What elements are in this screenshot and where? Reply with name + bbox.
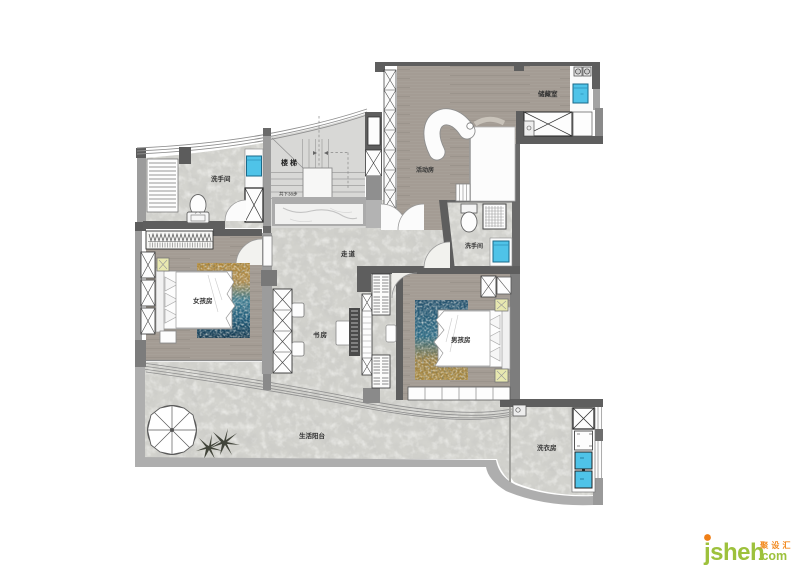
svg-text:洗手间: 洗手间 [211, 174, 231, 183]
svg-text:生活阳台: 生活阳台 [299, 431, 326, 440]
svg-text:洗衣房: 洗衣房 [537, 443, 557, 452]
svg-text:书房: 书房 [313, 330, 328, 339]
svg-text:活动房: 活动房 [416, 166, 434, 174]
svg-text:jsheh: jsheh [703, 539, 764, 565]
svg-text:女孩房: 女孩房 [193, 296, 213, 305]
svg-text:洗手间: 洗手间 [465, 242, 483, 250]
svg-text:楼梯: 楼梯 [281, 158, 299, 167]
svg-text:.com: .com [758, 549, 787, 563]
svg-text:走道: 走道 [340, 249, 356, 258]
svg-text:储藏室: 储藏室 [537, 89, 558, 98]
svg-text:聚设汇: 聚设汇 [759, 540, 794, 550]
svg-text:共下38步: 共下38步 [279, 191, 298, 198]
svg-text:男孩房: 男孩房 [450, 335, 471, 344]
